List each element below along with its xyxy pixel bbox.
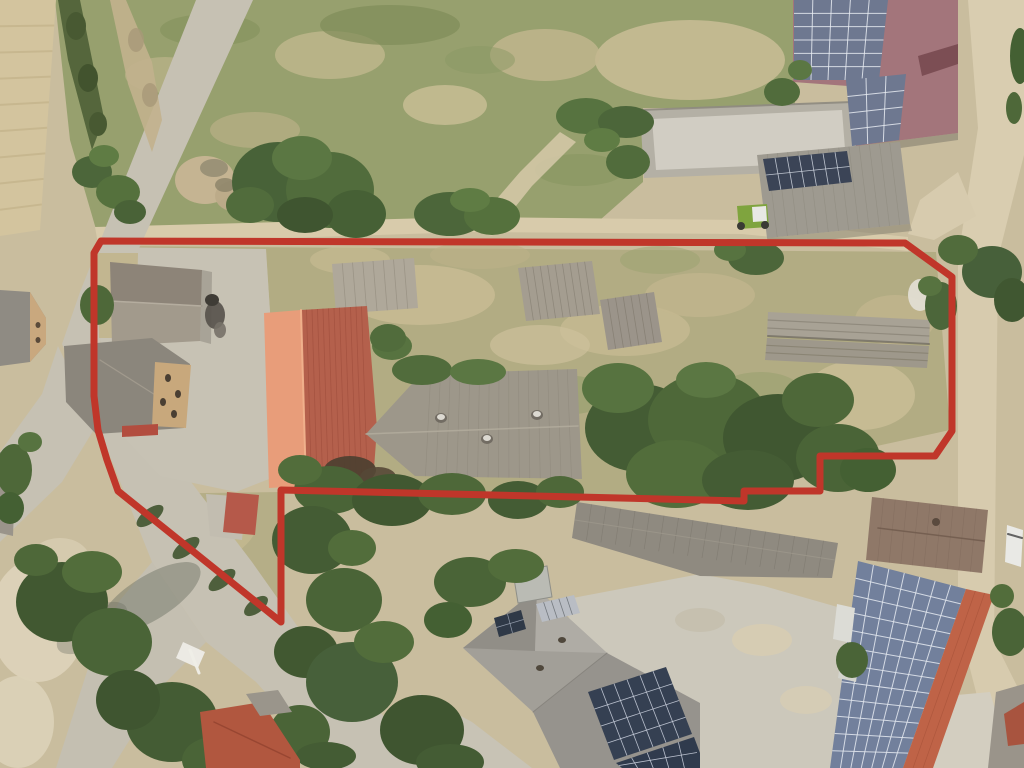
- tree: [89, 145, 119, 167]
- tree: [277, 197, 333, 233]
- green-patch: [320, 5, 460, 45]
- house-chimney: [558, 637, 566, 643]
- tractor-wheel: [761, 221, 769, 229]
- garden-bush: [18, 432, 42, 452]
- aerial-photo: [0, 0, 1024, 768]
- tree: [62, 551, 122, 593]
- tree: [584, 128, 620, 152]
- log-row-shade: [128, 28, 144, 52]
- dry-patch: [490, 325, 590, 365]
- tree: [328, 530, 376, 566]
- hedge-bush: [78, 64, 98, 92]
- wood-pile-shade: [215, 178, 235, 192]
- bush: [392, 355, 452, 385]
- tree: [990, 584, 1014, 608]
- tree: [226, 187, 274, 223]
- chimney: [533, 411, 541, 417]
- screenshot: [0, 0, 1024, 768]
- dry-patch: [403, 85, 487, 125]
- house-chimney: [536, 665, 544, 671]
- tree: [782, 373, 854, 427]
- farm-equipment: [205, 294, 219, 306]
- tree: [788, 60, 812, 80]
- green-patch: [620, 246, 700, 274]
- tree: [72, 608, 152, 676]
- farmhouse2-window: [165, 374, 171, 382]
- gray-barn-texture: [499, 372, 500, 478]
- tractor-wheel: [737, 222, 745, 230]
- dry-patch: [675, 608, 725, 632]
- red-outbuilding: [223, 492, 259, 535]
- tree: [278, 455, 322, 485]
- chimney: [437, 414, 445, 420]
- tree: [14, 544, 58, 576]
- tree: [764, 78, 800, 106]
- tree: [114, 200, 146, 224]
- tree: [272, 136, 332, 180]
- tree: [306, 568, 382, 632]
- tree: [676, 362, 736, 398]
- tree: [354, 621, 414, 663]
- farmhouse2-window: [160, 398, 166, 406]
- red-awning-shed: [122, 424, 158, 437]
- tree: [582, 363, 654, 413]
- dry-patch: [645, 273, 755, 317]
- south-house-chimney: [932, 518, 940, 526]
- tree: [450, 188, 490, 212]
- chimney: [483, 435, 491, 441]
- log-row-shade: [142, 83, 158, 107]
- dry-patch: [595, 20, 785, 100]
- hedge-bush: [89, 112, 107, 136]
- tree: [606, 145, 650, 179]
- hedge-bush: [1006, 92, 1022, 124]
- dry-patch: [780, 686, 832, 714]
- green-patch: [445, 46, 515, 74]
- wood-pile-shade: [200, 159, 228, 177]
- farmhouse2-gable: [152, 362, 191, 428]
- tree: [326, 190, 386, 238]
- tree: [836, 642, 868, 678]
- white-truck: [1005, 525, 1023, 567]
- tree: [536, 476, 584, 508]
- tree: [96, 670, 160, 730]
- farmhouse2-window: [171, 410, 177, 418]
- farmhouse-roof-south: [111, 301, 201, 346]
- hedge-bush: [66, 12, 86, 40]
- dry-patch: [732, 624, 792, 656]
- crop-rows: [0, 51, 52, 52]
- tree: [424, 602, 472, 638]
- tree: [488, 549, 544, 583]
- neighbor-window: [36, 322, 41, 328]
- tractor-cab: [752, 206, 767, 222]
- crop-rows: [0, 26, 54, 27]
- tree: [938, 235, 978, 265]
- bush: [450, 359, 506, 385]
- tree: [918, 276, 942, 296]
- old-roof: [600, 292, 662, 350]
- bush: [370, 324, 406, 352]
- neighbor-window: [36, 337, 41, 343]
- farmhouse2-window: [175, 390, 181, 398]
- farm-equipment: [214, 322, 226, 338]
